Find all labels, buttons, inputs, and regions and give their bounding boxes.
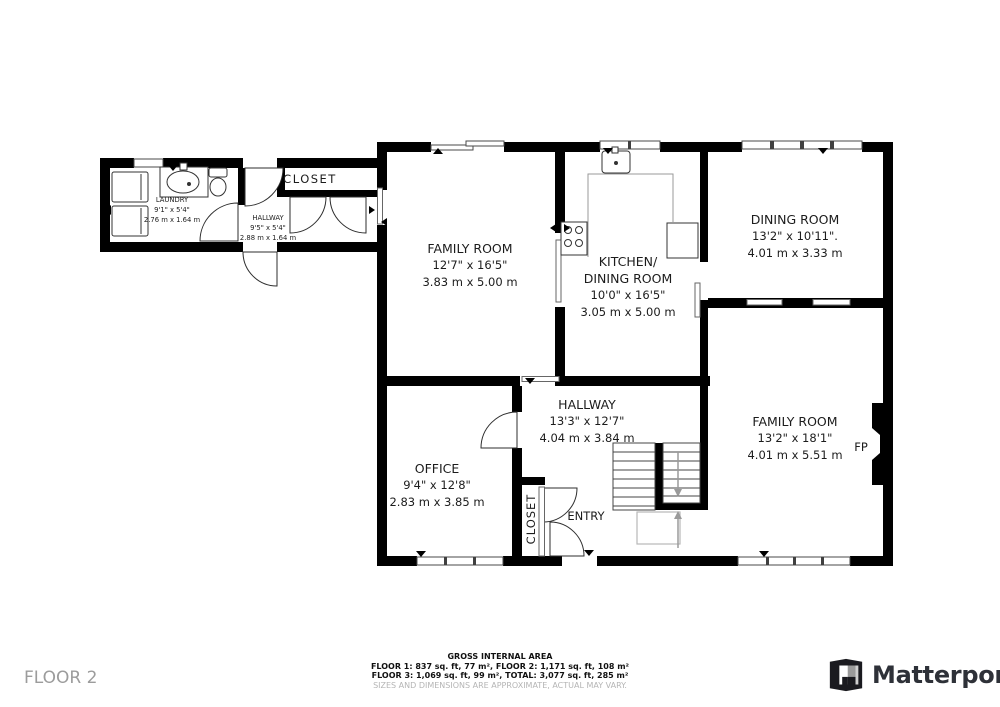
floorplan-page: LAUNDRY 9'1" x 5'4" 2.76 m x 1.64 m HALL… <box>0 0 1000 707</box>
office-door-arc <box>481 412 517 448</box>
burner <box>576 240 583 247</box>
kitchen-fixtures <box>561 147 698 258</box>
room-label-family-room-left: FAMILY ROOM 12'7" x 16'5" 3.83 m x 5.00 … <box>422 240 517 291</box>
burner <box>576 227 583 234</box>
toilet-tank <box>209 168 227 177</box>
exterior-walls <box>100 142 893 566</box>
matterport-logo-mark <box>827 656 865 694</box>
room-label-laundry: LAUNDRY 9'1" x 5'4" 2.76 m x 1.64 m <box>144 195 200 225</box>
room-label-hallway-main: HALLWAY 13'3" x 12'7" 4.04 m x 3.84 m <box>539 396 634 447</box>
room-label-office: OFFICE 9'4" x 12'8" 2.83 m x 3.85 m <box>389 460 484 511</box>
room-label-hallway-wing: HALLWAY 9'5" x 5'4" 2.88 m x 1.64 m <box>240 213 296 243</box>
room-label-closet-wing: CLOSET <box>283 172 337 186</box>
room-label-family-room-right: FAMILY ROOM 13'2" x 18'1" 4.01 m x 5.51 … <box>747 413 842 464</box>
wing-top-door-arc <box>245 168 283 206</box>
counter-outline <box>588 174 673 257</box>
fireplace <box>872 403 893 485</box>
toilet-bowl <box>210 178 226 196</box>
entry-door-arc-lower <box>550 522 584 556</box>
dryer <box>112 206 148 236</box>
room-label-entry: ENTRY <box>567 509 604 523</box>
faucet <box>180 163 187 170</box>
washer <box>112 172 148 202</box>
kitchen-faucet <box>612 147 618 153</box>
room-label-closet-entry: CLOSET <box>524 494 538 545</box>
stairs-walkline <box>637 512 680 544</box>
fireplace-label: FP <box>854 440 868 454</box>
room-label-kitchen-dining: KITCHEN/ DINING ROOM 10'0" x 16'5" 3.05 … <box>580 253 675 321</box>
matterport-logo: Matterport <box>827 656 1000 694</box>
sink-basin <box>167 171 199 193</box>
wing-bottom-door-arc <box>243 252 277 286</box>
matterport-wordmark: Matterport <box>872 661 1000 689</box>
burner <box>565 240 572 247</box>
room-label-dining-room: DINING ROOM 13'2" x 10'11". 4.01 m x 3.3… <box>747 211 842 262</box>
laundry-door-arc <box>200 203 238 241</box>
closet-right-door-arc <box>330 197 366 233</box>
floorplan-drawing <box>0 0 1000 707</box>
